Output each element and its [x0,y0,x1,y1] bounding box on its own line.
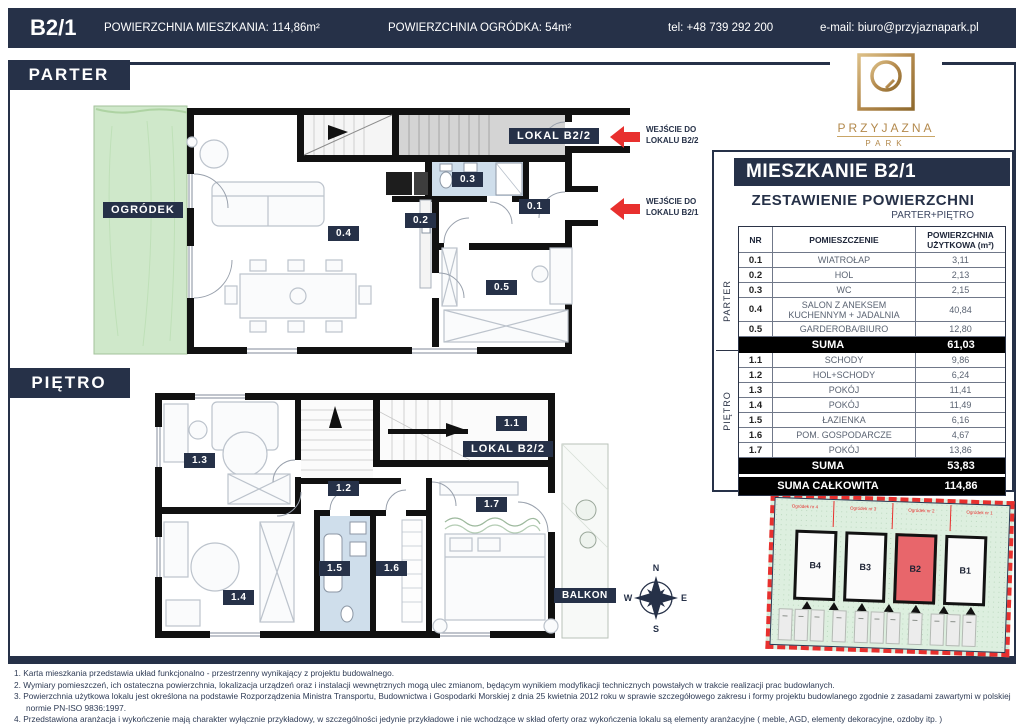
brand-subname: PARK [830,139,942,148]
table-row: 0.3WC2,15 [739,283,1005,298]
compass-rose-icon: N E S W [622,560,690,636]
table-row: 1.3POKÓJ11,41 [739,383,1005,398]
floor-lamp [187,137,197,147]
total-sum-row: SUMA CAŁKOWITA114,86 [739,477,1005,495]
balcony-plant [576,500,596,520]
bedroom14-furniture [164,522,294,626]
garden-plot-1: Ogródek nr 1 [950,505,1008,533]
parking-slot [886,612,901,644]
email-link[interactable]: e-mail: biuro@przyjaznapark.pl [820,22,979,34]
table-row: 0.5GARDEROBA/BIURO12,80 [739,322,1005,337]
svg-text:N: N [653,563,660,573]
entry-text-b22: WEJŚCIE DO LOKALU B2/2 [646,124,698,146]
entry-text-b21: WEJŚCIE DO LOKALU B2/1 [646,196,698,218]
tree-logo-icon [854,50,918,114]
flat-card-page: B2/1 POWIERZCHNIA MIESZKANIA: 114,86m² P… [0,0,1024,724]
panel-subtitle: ZESTAWIENIE POWIERZCHNI [714,192,1012,209]
room-label-0-1: 0.1 [519,199,550,214]
kitchen [386,172,431,288]
svg-text:E: E [681,593,687,603]
parter-sum-row: SUMA61,03 [739,337,1005,353]
garden-area-label: POWIERZCHNIA OGRÓDKA: 54m² [388,22,571,34]
office-furniture [442,248,572,342]
svg-text:S: S [653,624,659,634]
room-label-0-3: 0.3 [452,172,483,187]
table-row: 0.1WIATROŁAP3,11 [739,253,1005,268]
table-row: 1.2HOL+SCHODY6,24 [739,368,1005,383]
parking-slot [870,611,885,643]
bedside-lamp [544,619,558,633]
table-row: 0.2HOL2,13 [739,268,1005,283]
room-label-0-4: 0.4 [328,226,359,241]
svg-text:W: W [624,593,633,603]
table-row: 1.7POKÓJ13,86 [739,443,1005,458]
rug-1-3 [223,432,267,476]
parking-slot [810,609,825,641]
pietro-header: PIĘTRO [8,368,130,398]
site-plan: Ogródek nr 4 Ogródek nr 3 Ogródek nr 2 O… [765,493,1014,657]
garden-plot-4: Ogródek nr 4 [776,499,835,527]
footnotes: 1. Karta mieszkania przedstawia układ fu… [14,668,1014,724]
table-row: 1.1SCHODY9,86 [739,353,1005,368]
unit-stairs [304,115,392,155]
side-label-pietro: PIĘTRO [716,352,738,470]
parking-slot [832,610,847,642]
parking-slot [962,615,977,647]
parking-slot [930,613,945,645]
lokal-b22-label-pietro: LOKAL B2/2 [463,441,553,457]
footnote-2: 2. Wymiary pomieszczeń, ich ostateczna p… [14,680,1014,692]
area-table-panel: MIESZKANIE B2/1 ZESTAWIENIE POWIERZCHNI … [712,150,1014,492]
footnote-1: 1. Karta mieszkania przedstawia układ fu… [14,668,1014,680]
phone-link[interactable]: tel: +48 739 292 200 [668,22,773,34]
room-label-1-6: 1.6 [376,561,407,576]
siteplan-unit-b2-highlighted: B2 [893,533,937,604]
table-row: 1.4POKÓJ11,49 [739,398,1005,413]
garden-plot-3: Ogródek nr 3 [834,501,893,529]
parking-slot [908,613,923,645]
parking-slot [778,608,793,640]
desk-1-4 [164,522,188,577]
bedside-lamp [433,619,447,633]
footnote-3: 3. Powierzchnia użytkowa lokalu jest okr… [14,691,1014,714]
footnote-4: 4. Przedstawiona aranżacja i wykończenie… [14,714,1014,724]
table-row: 0.4SALON Z ANEKSEM KUCHENNYM + JADALNIA4… [739,298,1005,322]
room-label-1-5: 1.5 [319,561,350,576]
brand-logo: PRZYJAZNA PARK [830,50,942,150]
entry-arrow-b22-icon [610,126,640,148]
brand-name: PRZYJAZNA [837,121,934,137]
pietro-sum-row: SUMA53,83 [739,458,1005,474]
lokal-b22-label-parter: LOKAL B2/2 [509,128,599,144]
table-header-row: NR POMIESZCZENIE POWIERZCHNIA UŻYTKOWA (… [739,227,1005,253]
room-label-0-5: 0.5 [486,280,517,295]
garden-plot-2: Ogródek nr 2 [892,503,951,531]
parking-slot [794,609,809,641]
balcony-label: BALKON [554,588,616,603]
area-table: PARTER PIĘTRO NR POMIESZCZENIE POWIERZCH… [716,226,1006,496]
panel-title: MIESZKANIE B2/1 [734,158,1010,186]
room-label-1-7: 1.7 [476,497,507,512]
room-label-0-2: 0.2 [405,213,436,228]
parking-slot [854,611,869,643]
parter-header: PARTER [8,60,130,90]
room-label-1-2: 1.2 [328,481,359,496]
top-bar: B2/1 POWIERZCHNIA MIESZKANIA: 114,86m² P… [8,8,1016,48]
armchair [200,140,228,168]
siteplan-unit-b3: B3 [843,531,887,602]
room-label-1-4: 1.4 [223,590,254,605]
desk-chair [532,266,548,282]
balcony-area [562,444,608,638]
table-row: 1.6POM. GOSPODARCZE4,67 [739,428,1005,443]
siteplan-unit-b4: B4 [793,530,837,601]
parking-slot [946,614,961,646]
table-row: 1.5ŁAZIENKA6,16 [739,413,1005,428]
siteplan-units: B4 B3 B2 B1 [793,530,987,607]
bedroom13-furniture [164,402,290,504]
rug-1-4 [191,543,239,591]
room-label-1-3: 1.3 [184,453,215,468]
garden-area [94,106,189,354]
pietro-unit-stairs [301,400,373,478]
entry-arrow-b21-icon [610,198,640,220]
desk [550,248,572,304]
side-label-parter: PARTER [716,252,738,350]
pietro-floorplan [140,382,685,654]
balcony-plant [580,532,596,548]
siteplan-unit-b1: B1 [943,535,987,606]
apartment-area-label: POWIERZCHNIA MIESZKANIA: 114,86m² [104,22,320,34]
garden-label: OGRÓDEK [103,202,183,218]
panel-subtitle2: PARTER+PIĘTRO [714,210,1012,221]
table-plant [290,288,306,304]
unit-number: B2/1 [30,15,76,41]
room-label-1-1: 1.1 [496,416,527,431]
